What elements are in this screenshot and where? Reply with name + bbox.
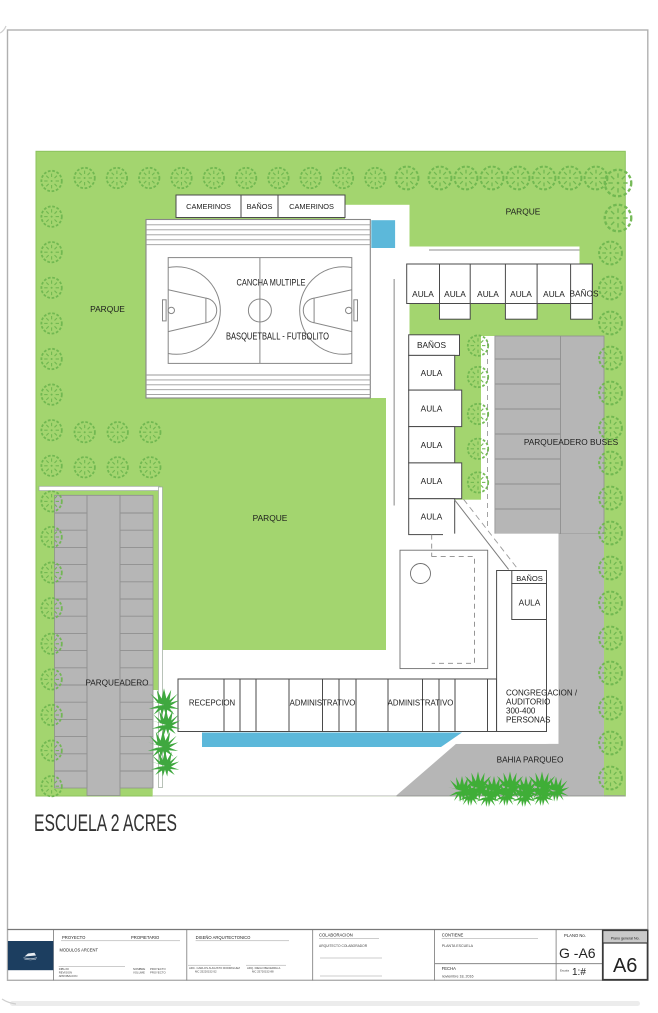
svg-text:CAMERINOS: CAMERINOS xyxy=(289,202,334,211)
svg-text:MC 25220152-52: MC 25220152-52 xyxy=(195,969,217,973)
svg-text:AULA: AULA xyxy=(421,368,443,378)
svg-text:PERSONAS: PERSONAS xyxy=(506,715,550,724)
svg-text:Plano general No.: Plano general No. xyxy=(611,937,640,941)
svg-text:PROYECTO: PROYECTO xyxy=(150,970,166,974)
svg-text:MC 25720152-88: MC 25720152-88 xyxy=(252,969,274,973)
svg-text:CONTIENE: CONTIENE xyxy=(442,933,464,938)
svg-text:PROYECTO: PROYECTO xyxy=(62,935,86,940)
svg-text:FECHA: FECHA xyxy=(442,966,456,971)
svg-text:G -A6: G -A6 xyxy=(559,945,596,961)
svg-text:DISEÑO ARQUITECTONICO: DISEÑO ARQUITECTONICO xyxy=(196,935,252,940)
svg-text:RECEPCION: RECEPCION xyxy=(189,699,235,708)
svg-text:BAÑOS: BAÑOS xyxy=(247,202,273,211)
svg-text:AULA: AULA xyxy=(543,289,565,299)
svg-text:PLANO No.: PLANO No. xyxy=(564,933,586,938)
svg-text:PARQUE: PARQUE xyxy=(253,513,288,523)
svg-text:BAÑOS: BAÑOS xyxy=(516,574,543,583)
svg-text:PARQUE: PARQUE xyxy=(506,207,541,217)
svg-text:ADMINISTRATIVO: ADMINISTRATIVO xyxy=(388,699,454,708)
svg-text:CONGREGACION /: CONGREGACION / xyxy=(506,688,578,697)
svg-text:300-400: 300-400 xyxy=(506,706,536,715)
svg-text:AULA: AULA xyxy=(519,598,541,608)
svg-text:CAMERINOS: CAMERINOS xyxy=(186,202,231,211)
svg-text:COLABORACION: COLABORACION xyxy=(319,933,353,938)
svg-text:CANCHA MULTIPLE: CANCHA MULTIPLE xyxy=(237,278,306,288)
svg-text:PLANTA ESCUELA: PLANTA ESCUELA xyxy=(442,944,474,948)
svg-text:AULA: AULA xyxy=(510,289,532,299)
svg-text:MODULOS ARCENT: MODULOS ARCENT xyxy=(60,948,99,953)
svg-text:AUDITORIO: AUDITORIO xyxy=(506,697,550,706)
svg-text:BAÑOS: BAÑOS xyxy=(569,289,599,299)
svg-text:ADMINISTRATIVO: ADMINISTRATIVO xyxy=(290,699,356,708)
svg-text:AULA: AULA xyxy=(421,403,443,413)
svg-text:PARQUE: PARQUE xyxy=(90,304,125,314)
svg-text:PROPIETARIO: PROPIETARIO xyxy=(131,935,160,940)
svg-text:PARQUEADERO BUSES: PARQUEADERO BUSES xyxy=(524,437,619,447)
svg-text:AULA: AULA xyxy=(477,289,499,299)
svg-text:BAHIA PARQUEO: BAHIA PARQUEO xyxy=(497,756,564,765)
svg-text:APROBACION: APROBACION xyxy=(59,974,78,978)
svg-text:AULA: AULA xyxy=(444,289,466,299)
svg-text:1:#: 1:# xyxy=(572,967,586,978)
svg-text:AULA: AULA xyxy=(412,289,434,299)
svg-text:BAÑOS: BAÑOS xyxy=(417,340,447,350)
svg-text:AULA: AULA xyxy=(421,440,443,450)
svg-text:AULA: AULA xyxy=(421,476,443,486)
svg-text:noviembre 18, 2016: noviembre 18, 2016 xyxy=(442,975,474,979)
svg-text:ARQUITECTO COLABORADOR: ARQUITECTO COLABORADOR xyxy=(319,944,368,948)
svg-text:A6: A6 xyxy=(613,955,637,977)
svg-text:BASQUETBALL - FUTBOLITO: BASQUETBALL - FUTBOLITO xyxy=(226,332,329,343)
svg-text:VOLUME: VOLUME xyxy=(133,970,145,974)
svg-text:ESCUELA 2 ACRES: ESCUELA 2 ACRES xyxy=(34,810,177,837)
svg-text:Escala: Escala xyxy=(560,969,569,973)
svg-text:PARQUEADERO: PARQUEADERO xyxy=(85,679,148,688)
svg-text:AULA: AULA xyxy=(421,512,443,522)
